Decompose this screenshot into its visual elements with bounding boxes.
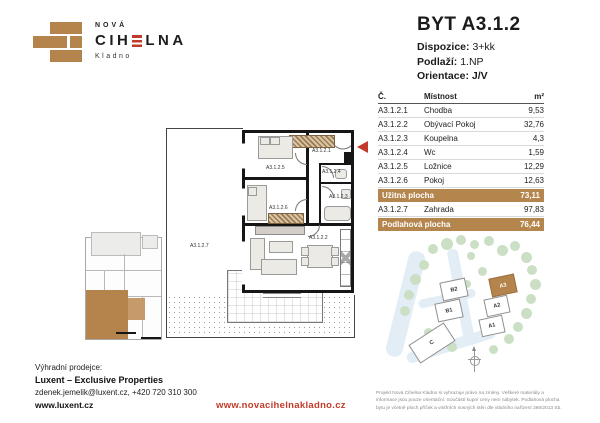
logo-brick-icon [33, 20, 83, 65]
kitchen-appliance-strip [340, 229, 351, 287]
room-code: A3.1.2.3 [378, 134, 424, 143]
apartment-title: BYT A3.1.2 [417, 14, 577, 36]
brick-shape [50, 22, 82, 34]
brick-e-icon [132, 35, 142, 47]
table-row: A3.1.2.2 Obývací Pokoj 32,76 [378, 118, 544, 132]
table-row: A3.1.2.5 Ložnice 12,29 [378, 160, 544, 174]
brick-shape [33, 36, 67, 48]
room-name: Pokoj [424, 176, 510, 185]
room-label-koupelna: A3.1.2.3 [329, 194, 348, 200]
tree-icon [400, 306, 410, 316]
table-row: A3.1.2.7 Zahrada 97,83 [378, 203, 544, 217]
room-code: A3.1.2.1 [378, 106, 424, 115]
room-area: 32,76 [510, 120, 544, 129]
room-area: 1,59 [510, 148, 544, 157]
mini-building-plan [85, 237, 162, 340]
apartment-header: BYT A3.1.2 Dispozice: 3+kk Podlaží: 1.NP… [417, 14, 577, 82]
building-label: C [429, 339, 436, 346]
apartment-outline: A3.1.2.5 A3.1.2.1 A3.1.2.4 A3.1.2.3 A3.1… [242, 130, 354, 293]
building-label: A3 [499, 282, 507, 289]
tree-icon [428, 244, 438, 254]
spec-label: Podlaží: [417, 56, 457, 68]
room-code: A3.1.2.2 [378, 120, 424, 129]
room-table: Č. Místnost m² A3.1.2.1 Chodba 9,53 A3.1… [378, 90, 544, 232]
room-code: A3.1.2.4 [378, 148, 424, 157]
tree-icon [470, 240, 479, 249]
kitchen-counter [255, 226, 305, 235]
brick-shape [50, 50, 82, 62]
coffee-table [269, 241, 293, 253]
tree-icon [497, 245, 508, 256]
pillow [248, 187, 257, 196]
tree-icon [441, 238, 453, 250]
room-label-obyvak: A3.1.2.2 [309, 235, 328, 241]
tree-icon [484, 236, 494, 246]
table-row: A3.1.2.3 Koupelna 4,3 [378, 132, 544, 146]
room-code: A3.1.2.6 [378, 176, 424, 185]
tree-icon [521, 252, 532, 263]
summary-label: Užitná plocha [382, 191, 520, 200]
room-name: Wc [424, 148, 510, 157]
tree-icon [513, 322, 523, 332]
door-arc [295, 199, 307, 211]
tree-icon [404, 290, 414, 300]
logo-line-cihelna: CIHLNA [95, 32, 187, 49]
tree-icon [530, 279, 541, 290]
col-header-name: Místnost [424, 92, 510, 101]
wardrobe-hatch [289, 135, 335, 148]
compass-icon [467, 348, 481, 372]
brick-shape [70, 36, 82, 48]
mini-plan-wall [116, 332, 136, 334]
table-header-row: Č. Místnost m² [378, 90, 544, 104]
spec-dispozice: Dispozice: 3+kk [417, 41, 577, 53]
seller-block: Výhradní prodejce: Luxent – Exclusive Pr… [35, 363, 235, 410]
room-area: 97,83 [510, 205, 544, 214]
spec-value: 1.NP [460, 56, 483, 68]
apartment-sheet: NOVÁ CIHLNA Kladno BYT A3.1.2 Dispozice:… [0, 0, 600, 423]
floor-plan: A3.1.2.7 [60, 95, 370, 345]
chair [301, 247, 309, 256]
pillow [270, 137, 280, 145]
chair [331, 257, 339, 266]
room-area: 12,29 [510, 162, 544, 171]
mini-plan-annex [91, 232, 141, 256]
wall [319, 163, 321, 225]
building-a2: A2 [483, 295, 510, 318]
room-label-chodba: A3.1.2.1 [312, 148, 331, 154]
tree-icon [527, 265, 537, 275]
logo-text-post: LNA [145, 32, 186, 49]
sofa [261, 259, 297, 275]
table-row: A3.1.2.4 Wc 1,59 [378, 146, 544, 160]
tree-icon [526, 294, 536, 304]
spec-podlazi: Podlaží: 1.NP [417, 56, 577, 68]
room-label-wc: A3.1.2.4 [322, 169, 341, 175]
summary-value: 73,11 [520, 191, 540, 200]
tree-icon [467, 252, 475, 260]
col-header-code: Č. [378, 92, 424, 101]
tree-icon [521, 308, 532, 319]
spec-orientace: Orientace: J/V [417, 70, 577, 82]
building-label: B1 [445, 307, 453, 314]
tree-icon [489, 345, 498, 354]
mini-plan-wall [141, 337, 161, 339]
table-row: A3.1.2.1 Chodba 9,53 [378, 104, 544, 118]
room-area: 9,53 [510, 106, 544, 115]
chair [331, 247, 339, 256]
room-name: Obývací Pokoj [424, 120, 510, 129]
tree-icon [419, 260, 429, 270]
bathtub [324, 206, 351, 221]
window [263, 293, 301, 298]
building-a3-highlighted: A3 [488, 274, 517, 298]
seller-url-link[interactable]: www.luxent.cz [35, 400, 235, 410]
spec-label: Orientace: [417, 70, 469, 82]
summary-row-uzitna: Užitná plocha 73,11 [378, 189, 544, 202]
room-name: Chodba [424, 106, 510, 115]
garden-label: A3.1.2.7 [190, 243, 209, 249]
spec-value: 3+kk [472, 41, 494, 53]
project-url-link[interactable]: www.novacihelnakladno.cz [216, 400, 346, 411]
disclaimer-text: Projekt Nová Cihelna Kladno si vyhrazuje… [376, 390, 566, 412]
building-label: B2 [450, 286, 458, 293]
tree-icon [410, 274, 421, 285]
room-name: Zahrada [424, 205, 510, 214]
spec-label: Dispozice: [417, 41, 470, 53]
room-code: A3.1.2.7 [378, 205, 424, 214]
room-name: Koupelna [424, 134, 510, 143]
tree-icon [478, 267, 487, 276]
wall [319, 182, 351, 184]
tree-icon [504, 334, 514, 344]
logo-text-pre: CIH [95, 32, 131, 49]
tree-icon [510, 241, 520, 251]
col-header-area: m² [510, 92, 544, 101]
utility-shaft [344, 152, 351, 163]
seller-contact[interactable]: zdenek.jemelik@luxent.cz, +420 720 310 3… [35, 388, 235, 397]
room-area: 4,3 [510, 134, 544, 143]
room-area: 12,63 [510, 176, 544, 185]
window [242, 143, 245, 169]
door-arc [295, 153, 307, 165]
room-name: Ložnice [424, 162, 510, 171]
table-row: A3.1.2.6 Pokoj 12,63 [378, 174, 544, 188]
site-plan: B2 B1 A3 A2 A1 C [393, 228, 548, 378]
logo-line-nova: NOVÁ [95, 22, 187, 29]
logo: NOVÁ CIHLNA Kladno [33, 20, 203, 66]
entrance-arrow-icon [357, 141, 368, 153]
wall [319, 163, 351, 165]
mini-plan-annex [142, 235, 158, 249]
dining-table [307, 245, 333, 268]
room-label-pokoj: A3.1.2.6 [269, 205, 288, 211]
building-label: A2 [493, 302, 501, 309]
chair [301, 257, 309, 266]
seller-label: Výhradní prodejce: [35, 363, 235, 372]
room-label-loznice: A3.1.2.5 [266, 165, 285, 171]
building-label: A1 [488, 322, 496, 329]
mini-plan-highlight [128, 298, 145, 320]
window [242, 188, 245, 216]
wall [245, 177, 309, 180]
spec-value: J/V [472, 70, 488, 82]
tree-icon [456, 235, 466, 245]
pillow [260, 137, 270, 145]
building-c: C [408, 322, 455, 363]
room-code: A3.1.2.5 [378, 162, 424, 171]
wardrobe-hatch [268, 213, 304, 224]
seller-name: Luxent – Exclusive Properties [35, 375, 235, 385]
window [242, 241, 245, 285]
building-a1: A1 [478, 315, 505, 338]
logo-line-kladno: Kladno [95, 53, 187, 60]
